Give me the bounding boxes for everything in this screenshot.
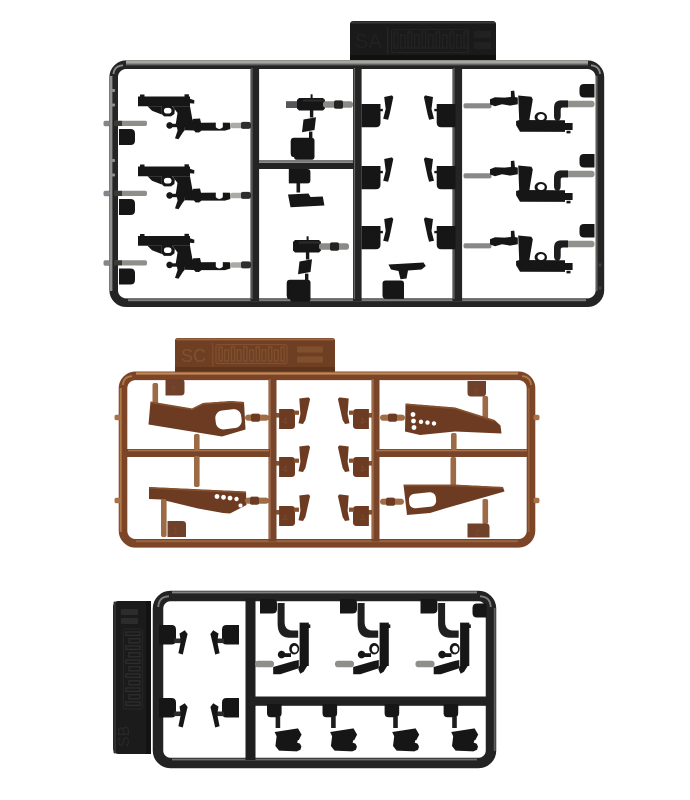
svg-text:SC: SC	[181, 346, 206, 366]
svg-text:1: 1	[173, 526, 178, 536]
svg-text:1: 1	[474, 387, 479, 397]
svg-text:SA: SA	[355, 31, 382, 53]
svg-text:SB: SB	[116, 726, 133, 747]
svg-text:2: 2	[475, 528, 480, 538]
svg-text:4: 4	[283, 416, 288, 426]
svg-text:2: 2	[171, 385, 176, 395]
